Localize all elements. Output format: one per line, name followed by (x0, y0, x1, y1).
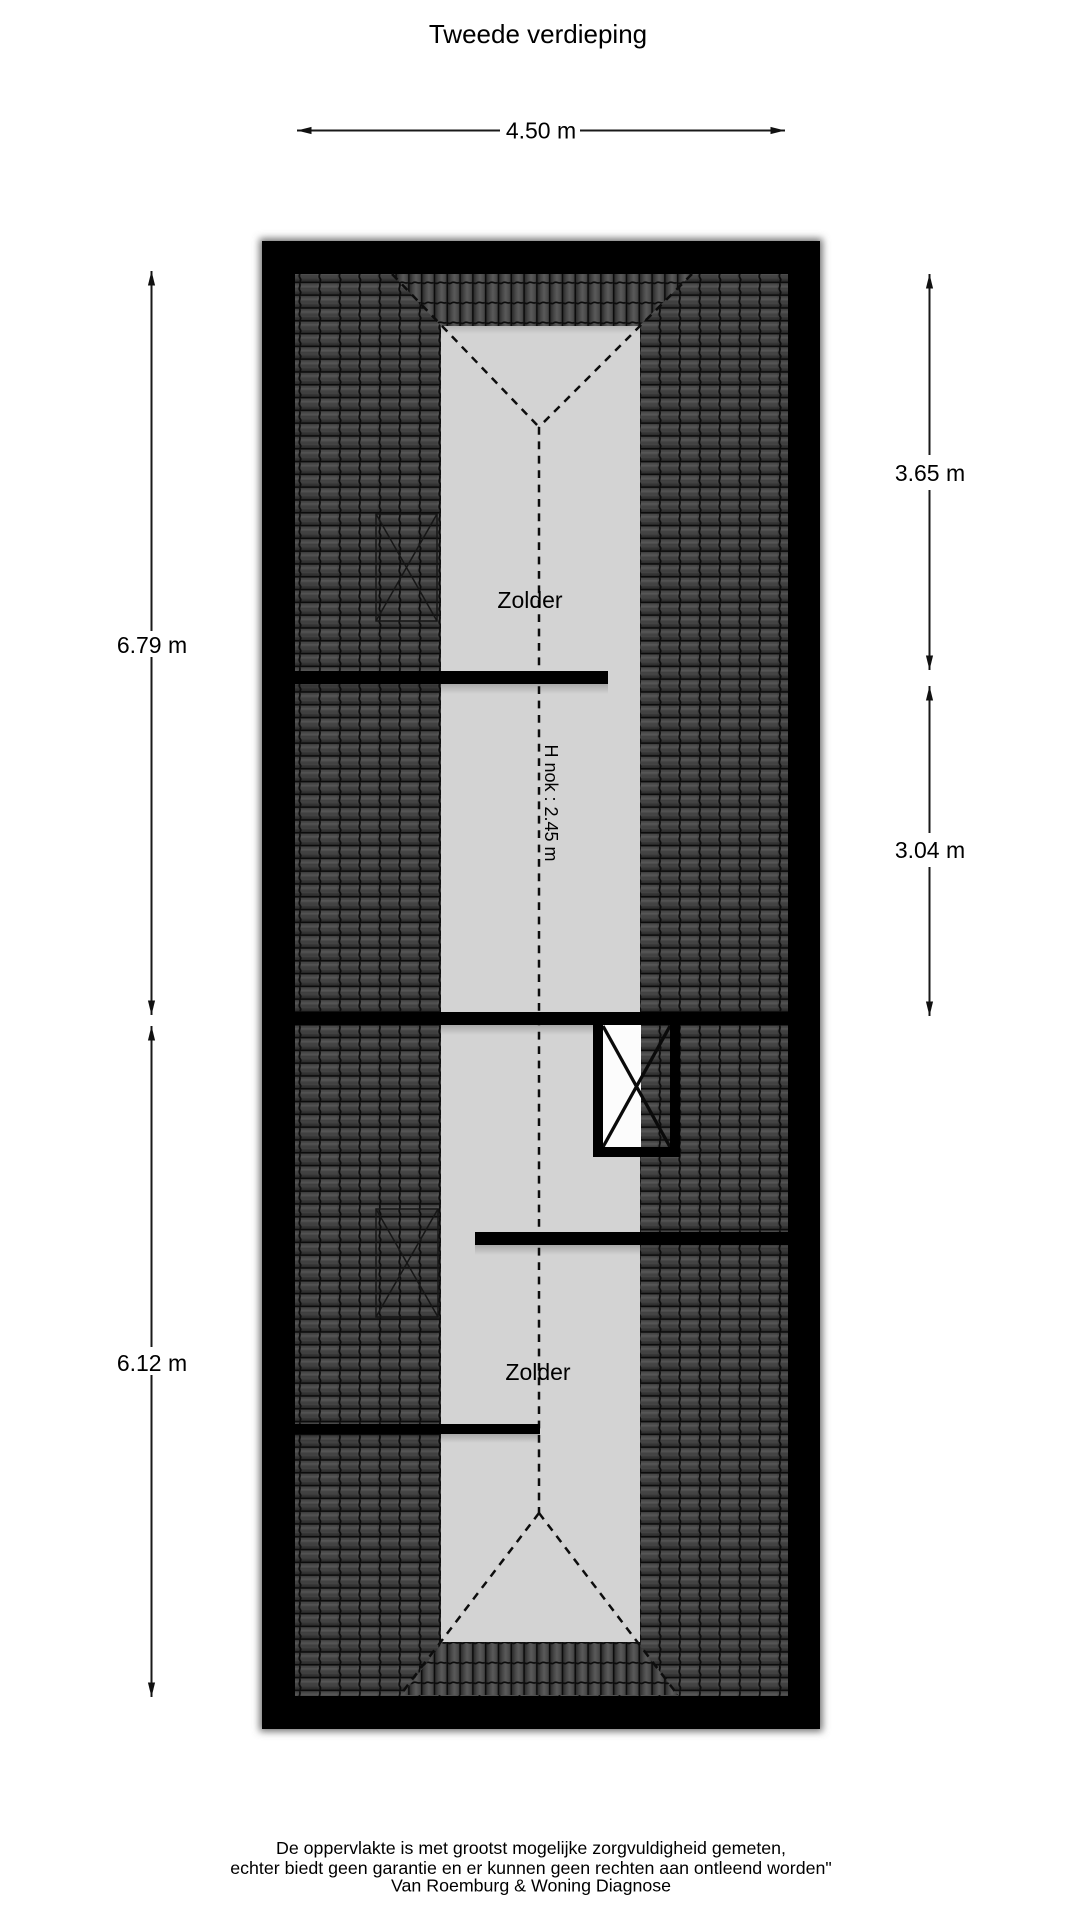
svg-text:Van Roemburg & Woning Diagnose: Van Roemburg & Woning Diagnose (391, 1876, 671, 1896)
svg-text:6.79 m: 6.79 m (117, 632, 187, 658)
svg-text:Zolder: Zolder (497, 587, 563, 613)
svg-text:6.12 m: 6.12 m (117, 1350, 187, 1376)
svg-text:Tweede verdieping: Tweede verdieping (429, 19, 647, 49)
svg-text:De oppervlakte is met grootst: De oppervlakte is met grootst mogelijke … (276, 1838, 786, 1858)
svg-text:H nok : 2.45 m: H nok : 2.45 m (541, 744, 561, 861)
svg-text:3.65 m: 3.65 m (895, 460, 965, 486)
svg-text:4.50 m: 4.50 m (506, 118, 576, 144)
svg-text:Zolder: Zolder (505, 1359, 571, 1385)
svg-text:3.04 m: 3.04 m (895, 837, 965, 863)
